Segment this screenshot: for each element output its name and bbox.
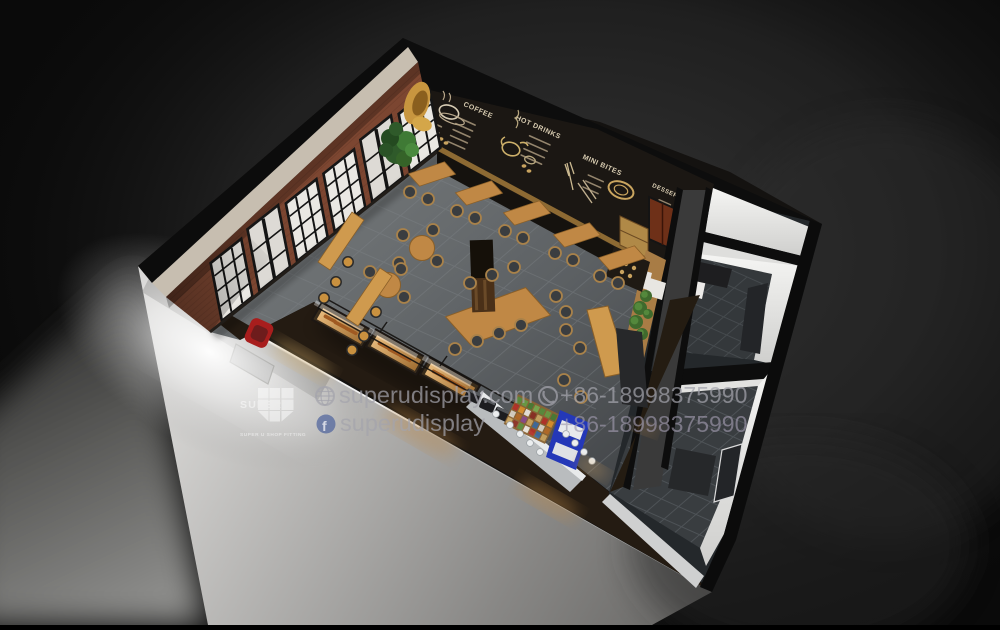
svg-text:+86-18998375990: +86-18998375990 — [560, 411, 747, 437]
svg-text:SUPER U SHOP FITTING: SUPER U SHOP FITTING — [240, 432, 306, 438]
svg-text:superudisplay: superudisplay — [340, 410, 485, 436]
svg-text:f: f — [322, 418, 327, 434]
svg-text:superudisplay.com: superudisplay.com — [339, 382, 533, 408]
svg-text:+86-18998375990: +86-18998375990 — [560, 382, 747, 408]
